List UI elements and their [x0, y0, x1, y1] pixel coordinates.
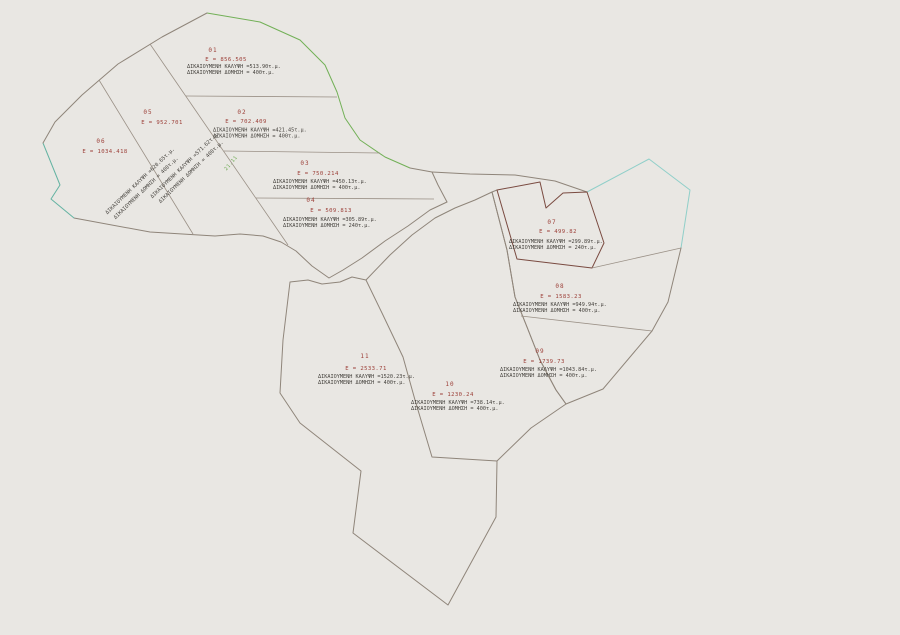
- north-boundary-green: [207, 13, 410, 168]
- parcel-build: ΔΙΚΑΙΟΥΜΕΝΗ ΔΟΜΗΣΗ = 240τ.μ.: [283, 223, 370, 229]
- parcel-05-label: 05 E = 952.701 ΔΙΚΑΙΟΥΜΕΝΗ ΚΑΛΥΨΗ =571.6…: [141, 109, 225, 205]
- distance-label: 21.11: [223, 155, 239, 172]
- road-northeast-edge: [432, 172, 587, 192]
- parcel-02-label: 02 E = 702.409 ΔΙΚΑΙΟΥΜΕΝΗ ΚΑΛΥΨΗ =421.4…: [213, 109, 307, 140]
- parcel-number: 11: [360, 353, 369, 360]
- parcel-number: 04: [306, 197, 315, 204]
- parcel-area: E = 1230.24: [432, 392, 474, 398]
- parcel-area: E = 2533.71: [345, 366, 386, 372]
- parcel-number: 01: [208, 47, 217, 54]
- parcel-07-label: 07 E = 499.82 ΔΙΚΑΙΟΥΜΕΝΗ ΚΑΛΥΨΗ =299.89…: [509, 219, 603, 251]
- divider-08-09: [521, 316, 652, 331]
- parcel-08-label: 08 E = 1583.23 ΔΙΚΑΙΟΥΜΕΝΗ ΚΑΛΥΨΗ =949.9…: [513, 283, 607, 314]
- parcel-area: E = 702.409: [225, 119, 266, 125]
- parcel-01-label: 01 E = 856.505 ΔΙΚΑΙΟΥΜΕΝΗ ΚΑΛΥΨΗ =513.9…: [187, 47, 281, 76]
- parcel-area: E = 952.701: [141, 120, 182, 126]
- divider-01-02: [186, 96, 337, 97]
- road-upper-edge: [74, 202, 447, 278]
- parcel-build: ΔΙΚΑΙΟΥΜΕΝΗ ΔΟΜΗΣΗ = 400τ.μ.: [318, 380, 405, 386]
- southwest-jag-teal: [43, 143, 74, 218]
- divider-02-03: [224, 151, 380, 153]
- parcel-build: ΔΙΚΑΙΟΥΜΕΝΗ ΔΟΜΗΣΗ = 400τ.μ.: [273, 185, 360, 191]
- parcel-number: 07: [547, 219, 556, 226]
- parcel-build: ΔΙΚΑΙΟΥΜΕΝΗ ΔΟΜΗΣΗ = 400τ.μ.: [187, 70, 274, 76]
- parcel-number: 02: [237, 109, 246, 116]
- parcel-03-label: 03 E = 750.214 ΔΙΚΑΙΟΥΜΕΝΗ ΚΑΛΥΨΗ =450.1…: [273, 160, 367, 191]
- parcel-build: ΔΙΚΑΙΟΥΜΕΝΗ ΔΟΜΗΣΗ = 400τ.μ.: [500, 373, 587, 379]
- divider-07-08: [592, 248, 681, 268]
- parcel-number: 10: [445, 381, 454, 388]
- parcel-map-svg: 01 E = 856.505 ΔΙΚΑΙΟΥΜΕΝΗ ΚΑΛΥΨΗ =513.9…: [0, 0, 900, 635]
- parcel-number: 09: [535, 348, 544, 355]
- parcel-04-label: 04 E = 509.813 ΔΙΚΑΙΟΥΜΕΝΗ ΚΑΛΥΨΗ =305.8…: [283, 197, 377, 229]
- parcel-build: ΔΙΚΑΙΟΥΜΕΝΗ ΔΟΜΗΣΗ = 400τ.μ.: [513, 308, 600, 314]
- parcel-build: ΔΙΚΑΙΟΥΜΕΝΗ ΔΟΜΗΣΗ = 240τ.μ.: [509, 245, 596, 251]
- parcel-11-outline: [280, 277, 497, 605]
- divider-03-04: [256, 198, 434, 199]
- right-group-east-edge: [652, 248, 681, 331]
- upper-group-right-tip: [410, 168, 447, 202]
- parcel-area: E = 1739.73: [523, 359, 564, 365]
- parcel-11-label: 11 E = 2533.71 ΔΙΚΑΙΟΥΜΕΝΗ ΚΑΛΥΨΗ =1520.…: [318, 353, 415, 386]
- parcel-area: E = 499.82: [539, 229, 577, 235]
- parcel-build: ΔΙΚΑΙΟΥΜΕΝΗ ΔΟΜΗΣΗ = 400τ.μ.: [411, 406, 498, 412]
- parcel-area: E = 856.505: [205, 57, 246, 63]
- parcel-number: 03: [300, 160, 309, 167]
- parcel-area: E = 1034.418: [82, 149, 127, 155]
- parcel-10-outline: [366, 192, 566, 461]
- parcel-area: E = 509.813: [310, 208, 351, 214]
- parcel-area: E = 750.214: [297, 171, 339, 177]
- parcel-build: ΔΙΚΑΙΟΥΜΕΝΗ ΔΟΜΗΣΗ = 400τ.μ.: [213, 134, 300, 140]
- parcel-10-label: 10 E = 1230.24 ΔΙΚΑΙΟΥΜΕΝΗ ΚΑΛΥΨΗ =738.1…: [411, 381, 505, 412]
- parcel-09-label: 09 E = 1739.73 ΔΙΚΑΙΟΥΜΕΝΗ ΚΑΛΥΨΗ =1043.…: [500, 348, 597, 379]
- parcel-number: 06: [96, 138, 105, 145]
- parcel-number: 05: [143, 109, 152, 116]
- parcel-number: 08: [555, 283, 564, 290]
- cadastral-plan-canvas: 01 E = 856.505 ΔΙΚΑΙΟΥΜΕΝΗ ΚΑΛΥΨΗ =513.9…: [0, 0, 900, 635]
- parcel-area: E = 1583.23: [540, 294, 581, 300]
- northeast-boundary-cyan: [587, 159, 690, 248]
